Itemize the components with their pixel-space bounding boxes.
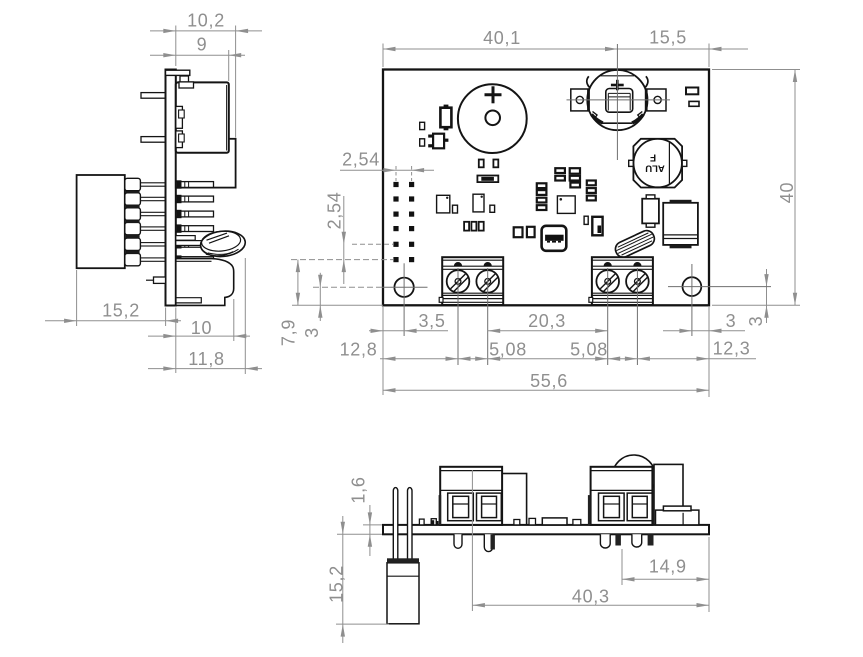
- svg-text:3: 3: [726, 311, 737, 331]
- svg-text:15,2: 15,2: [326, 565, 346, 603]
- svg-text:40: 40: [777, 182, 797, 203]
- svg-text:2,54: 2,54: [342, 150, 380, 170]
- svg-text:11,8: 11,8: [188, 349, 225, 369]
- svg-text:ALU: ALU: [645, 162, 665, 173]
- svg-text:12,8: 12,8: [340, 340, 378, 360]
- svg-text:3: 3: [746, 316, 766, 327]
- svg-text:5,08: 5,08: [489, 340, 527, 360]
- svg-text:40,3: 40,3: [572, 586, 610, 606]
- svg-text:14,9: 14,9: [649, 557, 687, 577]
- svg-text:2,54: 2,54: [325, 192, 345, 230]
- svg-text:55,6: 55,6: [530, 371, 568, 391]
- svg-text:5,08: 5,08: [570, 340, 608, 360]
- svg-text:9: 9: [197, 35, 208, 55]
- svg-text:15,2: 15,2: [102, 301, 140, 321]
- svg-text:1,6: 1,6: [349, 476, 369, 503]
- svg-text:7,9: 7,9: [279, 319, 299, 346]
- svg-text:20,3: 20,3: [528, 311, 566, 331]
- svg-text:3,5: 3,5: [418, 311, 445, 331]
- svg-text:10,2: 10,2: [187, 11, 225, 31]
- svg-text:3: 3: [302, 327, 322, 338]
- svg-text:F: F: [650, 151, 656, 162]
- svg-text:40,1: 40,1: [483, 28, 521, 48]
- svg-text:12,3: 12,3: [713, 339, 751, 359]
- svg-text:15,5: 15,5: [649, 28, 687, 48]
- svg-text:10: 10: [191, 318, 212, 338]
